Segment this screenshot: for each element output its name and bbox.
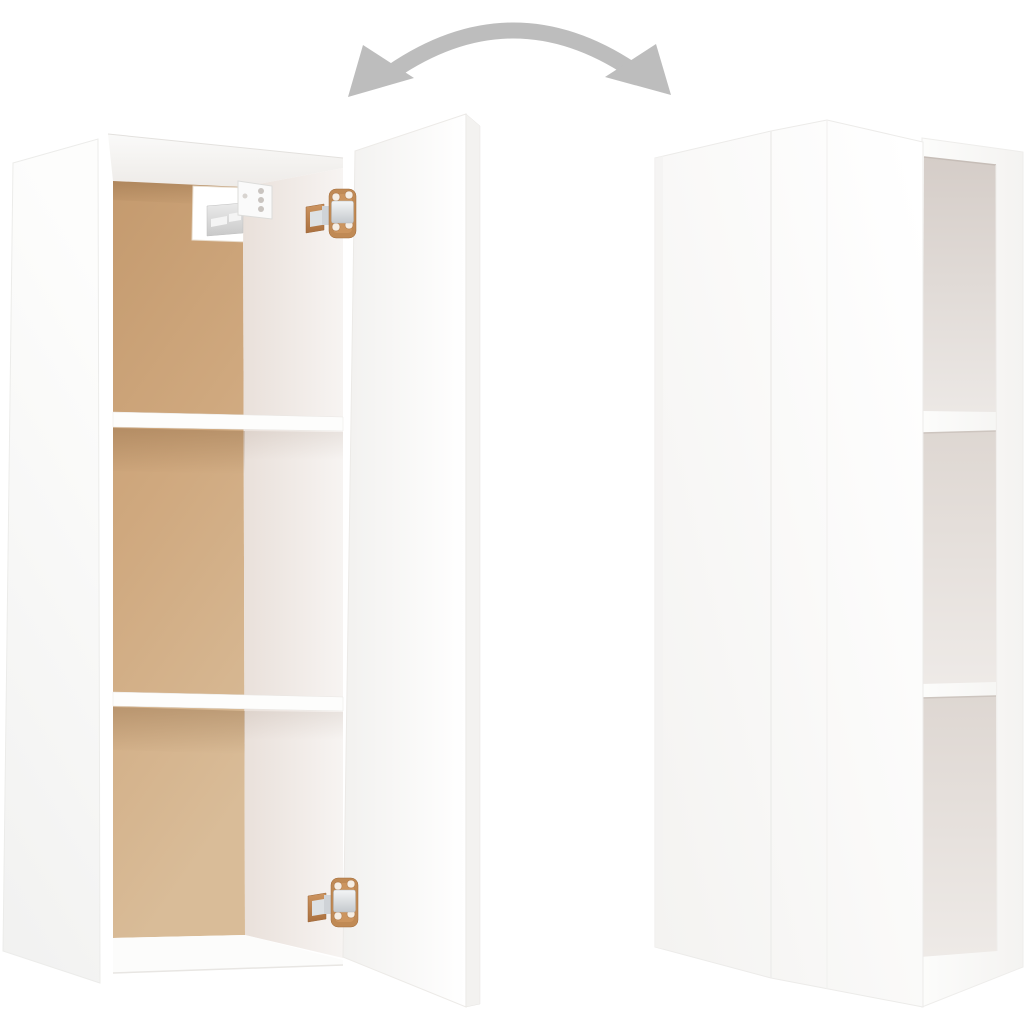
arrow-band — [392, 30, 632, 72]
open-door-edge — [466, 114, 480, 1007]
cabinet-illustration — [0, 0, 1024, 1024]
open-cabinet-right-inner-wall — [243, 168, 343, 958]
shelf-lower-shadow — [113, 707, 245, 754]
open-door-face — [343, 114, 466, 1007]
side-opening-middle — [921, 431, 996, 684]
mount-block-hole — [258, 188, 264, 194]
cabinet-closed — [655, 120, 1023, 1007]
shelf-upper-wall-shadow — [245, 431, 343, 460]
mount-block-hole — [258, 206, 264, 212]
rotation-arrow — [348, 30, 671, 97]
side-opening-bottom — [920, 696, 997, 957]
closed-cabinet-left-edge — [655, 156, 663, 949]
product-image — [0, 0, 1024, 1024]
mount-block-hole — [258, 197, 264, 203]
mount-block-hole — [243, 194, 248, 199]
shelf-lower-wall-shadow — [245, 711, 343, 740]
mount-block — [238, 181, 272, 219]
side-opening-top — [923, 157, 996, 412]
shelf-upper-shadow — [113, 428, 245, 474]
open-cabinet-left-side-panel — [3, 139, 100, 983]
cabinet-open — [3, 114, 480, 1007]
closed-cabinet-face — [655, 120, 923, 1007]
open-cabinet-back-panel — [113, 181, 245, 938]
